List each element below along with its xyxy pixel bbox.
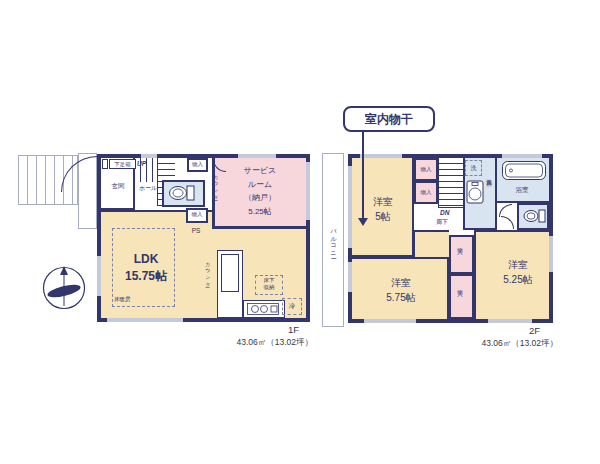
service-counter-label: カウンター (212, 171, 219, 199)
floor-2-plan: 洋室 5帖 物入 物入 DN 廊下 洗 洗面所 浴室 洋室 5.75帖 物入 物… (348, 154, 553, 323)
floor-2-area: 43.06㎡（13.02坪） (458, 338, 558, 350)
closet-2f-d (449, 274, 474, 319)
window-segment (306, 162, 310, 220)
stairs-down (438, 158, 464, 208)
floor-heating-label: 床暖房 (114, 296, 131, 303)
washroom-label: 洗面所 (485, 174, 492, 177)
closet-top-label: 物入 (187, 161, 208, 168)
shoe-box-label: 下足箱 (109, 159, 136, 169)
closet-a-label: 物入 (414, 166, 438, 173)
callout-arrow-line (362, 131, 364, 218)
service-room-label: サービス ルーム （納戸） 5.25帖 (221, 164, 299, 218)
window-segment (348, 262, 352, 292)
bedroom-b-label: 洋室 5.75帖 (366, 275, 436, 305)
compass-icon (40, 264, 88, 312)
window-segment (549, 236, 553, 272)
floor-1-label: 1F (288, 324, 299, 335)
bathroom-label: 浴室 (504, 186, 540, 195)
closet-2f-c (449, 235, 474, 274)
kitchen-counter-label: カウンター (204, 258, 211, 286)
closet-d-label: 物入 (456, 285, 463, 287)
ps-label: PS (185, 227, 207, 236)
dn-label: DN (440, 209, 449, 218)
indoor-drying-callout: 室内物干 (343, 106, 435, 132)
floor-2-label: 2F (529, 325, 540, 336)
balcony: バルコニー (322, 153, 344, 327)
window-segment (97, 256, 101, 296)
washbasin-icon (466, 180, 484, 204)
bathtub-icon (502, 161, 546, 180)
window-segment (488, 319, 532, 323)
toilet-icon (521, 208, 547, 224)
window-segment (238, 154, 276, 158)
floor-1-area: 43.06㎡（13.02坪） (213, 337, 313, 349)
callout-arrow-head (358, 218, 368, 226)
stove-sink-icon (247, 303, 279, 315)
closet-c-label: 物入 (456, 243, 463, 245)
fridge-label: 冷 (282, 302, 302, 311)
window-segment (502, 154, 542, 158)
hall-label: ホール (136, 184, 160, 192)
up-label: UP (137, 160, 146, 169)
floor-1-plan: 下足箱 玄関 UP ホール 物入 物入 PS サービス ルーム （納戸） 5.2… (97, 154, 310, 322)
kitchen-tall-cabinet (221, 254, 239, 292)
window-segment (360, 154, 402, 158)
closet-b-label: 物入 (414, 189, 438, 196)
window-segment (107, 318, 183, 322)
closet-mid-label: 物入 (186, 211, 208, 218)
genkan-label: 玄関 (103, 182, 133, 191)
bedroom-c-door-arc (501, 216, 514, 229)
bedroom-c-label: 洋室 5.25帖 (490, 257, 546, 287)
toilet-icon (166, 183, 198, 203)
underfloor-storage-label: 床下 収納 (255, 277, 283, 291)
balcony-label: バルコニー (329, 224, 338, 256)
ldk-label: LDK 15.75帖 (109, 251, 183, 286)
room-bedroom-b-notch (413, 230, 449, 257)
floorplan-canvas: 下足箱 玄関 UP ホール 物入 物入 PS サービス ルーム （納戸） 5.2… (0, 0, 600, 464)
window-segment (141, 154, 157, 158)
washer-label: 洗 (465, 164, 482, 172)
window-segment (348, 166, 352, 248)
window-segment (364, 319, 416, 323)
shoe-box-symbol (102, 159, 108, 169)
hallway-label: 廊下 (436, 218, 448, 226)
